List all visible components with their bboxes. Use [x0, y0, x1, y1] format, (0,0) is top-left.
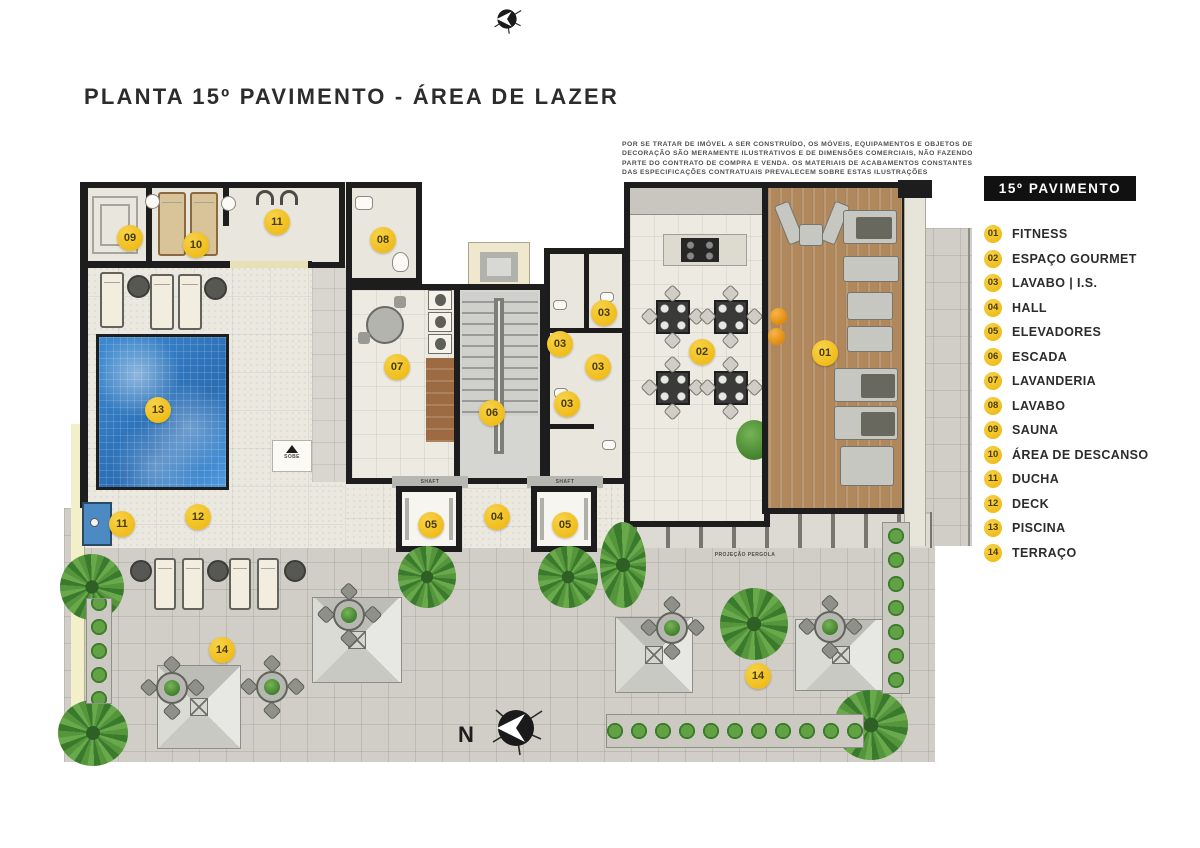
- marker-lavabo-is-3: 03: [585, 354, 611, 380]
- terrace-table-set: [802, 599, 858, 655]
- compass-icon: [486, 698, 546, 758]
- compass-icon-top: [490, 2, 524, 36]
- dining-table: [656, 300, 690, 334]
- marker-lavabo-is-2: 03: [547, 331, 573, 357]
- chair: [394, 296, 406, 308]
- terrace-lounger: [182, 558, 204, 610]
- terrace-lounger: [257, 558, 279, 610]
- gym-machine: [847, 292, 893, 320]
- pool-lounger: [178, 274, 202, 330]
- ramp-sign: SOBE: [272, 440, 312, 472]
- shower-head-icon: [256, 190, 274, 205]
- elevator-door: [584, 498, 588, 540]
- marker-lavabo-is-4: 03: [554, 391, 580, 417]
- exercise-bike: [840, 446, 894, 486]
- dining-table: [714, 300, 748, 334]
- terrace-table-set: [144, 660, 200, 716]
- treadmill-belt: [861, 412, 895, 436]
- terrace-table-set: [244, 659, 300, 715]
- elevator-door: [449, 498, 453, 540]
- gym-machine: [843, 256, 899, 282]
- treadmill-belt: [856, 217, 892, 239]
- terrace-lounger: [154, 558, 176, 610]
- marker-fitness: 01: [812, 340, 838, 366]
- toilet: [602, 440, 616, 450]
- marker-deck: 12: [185, 504, 211, 530]
- chair: [358, 332, 370, 344]
- toilet: [392, 252, 409, 272]
- floor-plan: PROJEÇÃO PERGOLA: [0, 0, 1200, 848]
- parapet: [904, 198, 926, 546]
- planter: [606, 714, 864, 748]
- side-table: [207, 560, 229, 582]
- pergola-projection-label: PROJEÇÃO PERGOLA: [660, 552, 830, 558]
- table-plant: [264, 679, 280, 695]
- table-plant: [664, 620, 680, 636]
- pool-lounger: [100, 272, 124, 328]
- marker-area-de-descanso: 10: [183, 232, 209, 258]
- exercise-ball: [770, 308, 787, 325]
- kitchen-counter: [630, 188, 764, 215]
- terrace-lounger: [229, 558, 251, 610]
- terrace-edge-line: [968, 228, 970, 546]
- marker-lavabo-is-1: 03: [591, 300, 617, 326]
- treadmill: [843, 210, 897, 244]
- dining-set: [647, 291, 699, 343]
- exercise-ball: [768, 328, 785, 345]
- marker-escada: 06: [479, 400, 505, 426]
- door-threshold: [230, 261, 308, 268]
- wall: [584, 254, 589, 332]
- table-plant: [822, 619, 838, 635]
- wall: [80, 182, 88, 508]
- stair-rail-line: [498, 301, 500, 451]
- dining-table: [714, 371, 748, 405]
- side-table: [221, 196, 236, 211]
- wall: [898, 180, 932, 198]
- sink: [553, 300, 567, 310]
- marker-lavanderia: 07: [384, 354, 410, 380]
- washing-machine: [428, 334, 452, 354]
- planter: [86, 598, 112, 704]
- pool-lounger: [150, 274, 174, 330]
- table-plant: [164, 680, 180, 696]
- marker-elevador-direito: 05: [552, 512, 578, 538]
- rest-lounger: [158, 192, 186, 256]
- sink: [355, 196, 373, 210]
- corridor-floor: [312, 266, 346, 482]
- terrace-table-set: [321, 587, 377, 643]
- palm-tree: [720, 588, 788, 660]
- dining-set: [647, 362, 699, 414]
- hedge: [87, 599, 111, 703]
- palm-tree: [398, 546, 456, 608]
- shower-drain: [90, 518, 99, 527]
- marker-lavabo: 08: [370, 227, 396, 253]
- palm-tree: [58, 700, 128, 766]
- shaft-inner: [487, 258, 511, 276]
- dining-set: [705, 362, 757, 414]
- marker-ducha-superior: 11: [264, 209, 290, 235]
- palm-tree: [538, 546, 598, 608]
- marker-terraco-esquerdo: 14: [209, 637, 235, 663]
- gym-machine: [847, 326, 893, 352]
- wood-counter: [426, 358, 454, 442]
- treadmill: [834, 368, 898, 402]
- elevator-door: [540, 498, 544, 540]
- washing-machine: [428, 312, 452, 332]
- hedge: [883, 523, 909, 693]
- treadmill: [834, 406, 898, 440]
- elevator-door: [405, 498, 409, 540]
- north-label: N: [458, 722, 474, 748]
- cooktop: [681, 238, 719, 262]
- marker-hall: 04: [484, 504, 510, 530]
- floor-plan-page: PLANTA 15º PAVIMENTO - ÁREA DE LAZER POR…: [0, 0, 1200, 848]
- shower-head-icon: [280, 190, 298, 205]
- dining-table: [656, 371, 690, 405]
- washing-machine: [428, 290, 452, 310]
- side-table: [130, 560, 152, 582]
- terrace-table-set: [644, 600, 700, 656]
- side-table: [127, 275, 150, 298]
- sobe-label: SOBE: [273, 454, 311, 460]
- dining-set: [705, 291, 757, 343]
- treadmill-belt: [861, 374, 895, 398]
- wall: [550, 424, 594, 429]
- table-plant: [341, 607, 357, 623]
- marker-ducha-inferior: 11: [109, 511, 135, 537]
- side-table: [284, 560, 306, 582]
- side-table: [145, 194, 160, 209]
- marker-sauna: 09: [117, 225, 143, 251]
- marker-espaco-gourmet: 02: [689, 339, 715, 365]
- marker-piscina: 13: [145, 397, 171, 423]
- hedge: [607, 715, 863, 747]
- marker-elevador-esquerdo: 05: [418, 512, 444, 538]
- marker-terraco-direito: 14: [745, 663, 771, 689]
- up-arrow-icon: [286, 445, 298, 453]
- palm-tree: [600, 522, 646, 608]
- planter: [882, 522, 910, 694]
- side-table: [204, 277, 227, 300]
- gym-seat: [799, 224, 823, 246]
- laundry-table: [366, 306, 404, 344]
